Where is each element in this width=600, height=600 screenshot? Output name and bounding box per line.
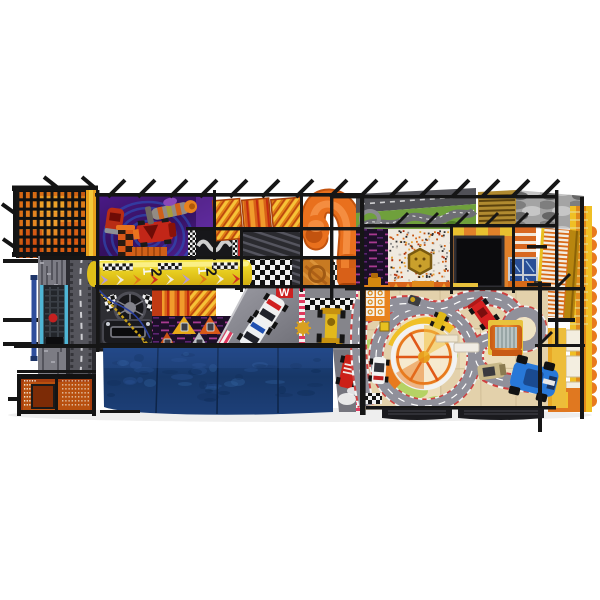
- svg-text:2: 2: [202, 267, 220, 277]
- svg-text:W: W: [279, 287, 290, 299]
- svg-text:2: 2: [147, 268, 165, 278]
